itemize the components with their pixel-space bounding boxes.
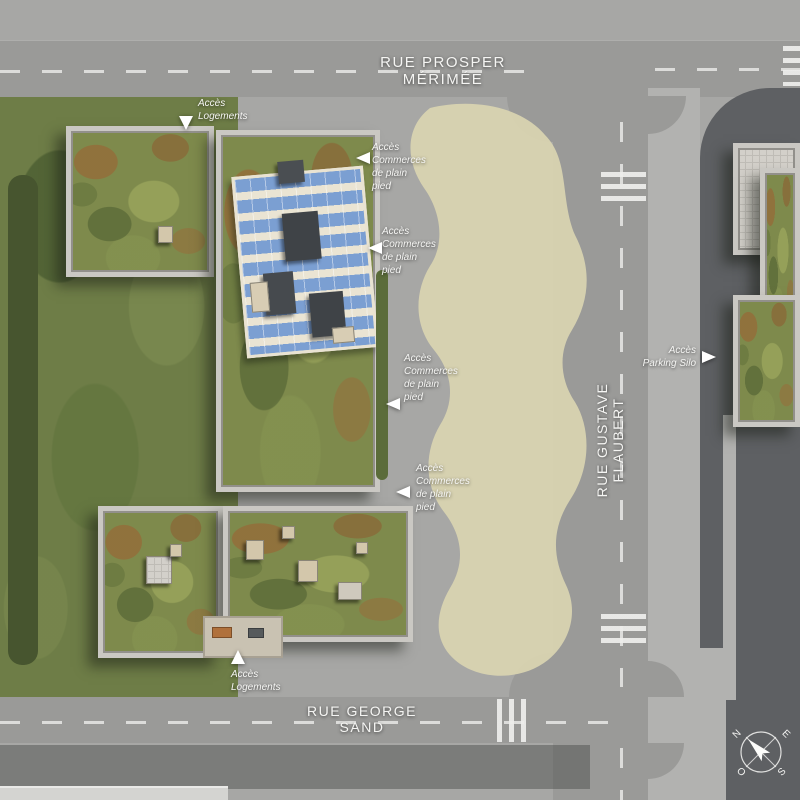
rooftop-unit xyxy=(298,560,318,582)
crosswalk xyxy=(601,614,646,646)
lane-marking xyxy=(655,68,800,71)
access-arrow-down-icon xyxy=(179,116,193,130)
access-arrow-up-icon xyxy=(231,650,245,664)
shaded-verge xyxy=(0,745,590,789)
annotation-acces-parking-silo: Accès Parking Silo xyxy=(636,344,696,370)
annotation-acces-logements-top: Accès Logements xyxy=(198,97,247,123)
building-b-solar-roof xyxy=(216,130,380,492)
rooftop-unit xyxy=(170,544,182,557)
rooftop-terrace xyxy=(146,556,172,584)
crosswalk xyxy=(497,699,532,742)
annotation-acces-commerces-3: Accès Commerces de plain pied xyxy=(404,352,458,404)
silo-building-green-roof xyxy=(733,295,800,427)
hedge-strip xyxy=(376,270,388,480)
building-a-green-roof xyxy=(66,126,214,277)
solar-panel-array xyxy=(231,166,378,359)
site-plan: N E S O RUE PROSPER MÉRIMÉE RUE GUSTAVE … xyxy=(0,0,800,800)
terrace-table xyxy=(212,627,232,638)
terrace-table xyxy=(248,628,264,638)
access-arrow-left-icon xyxy=(386,398,400,410)
street-label-right: RUE GUSTAVE FLAUBERT xyxy=(594,340,626,540)
rooftop-unit xyxy=(277,160,305,184)
rooftop-unit xyxy=(356,542,368,554)
rooftop-unit xyxy=(282,211,322,262)
annotation-acces-logements-bottom: Accès Logements xyxy=(231,668,280,694)
access-arrow-left-icon xyxy=(368,242,382,254)
parking-silo-grounds-south xyxy=(726,640,800,800)
building-roof-south xyxy=(0,786,228,800)
rooftop-unit xyxy=(158,226,173,243)
crosswalk xyxy=(783,46,800,86)
annotation-acces-commerces-2: Accès Commerces de plain pied xyxy=(382,225,436,277)
annotation-acces-commerces-4: Accès Commerces de plain pied xyxy=(416,462,470,514)
access-arrow-left-icon xyxy=(396,486,410,498)
hedge xyxy=(8,175,38,665)
crosswalk xyxy=(601,172,646,202)
rooftop-unit xyxy=(338,582,362,600)
rooftop-stair-box xyxy=(332,326,355,344)
rooftop-unit xyxy=(246,540,264,560)
road-corner xyxy=(507,96,553,142)
access-arrow-left-icon xyxy=(356,152,370,164)
annotation-acces-commerces-1: Accès Commerces de plain pied xyxy=(372,141,426,193)
street-label-bottom: RUE GEORGE SAND xyxy=(282,703,442,735)
sidewalk-right xyxy=(648,88,700,700)
parking-walkway xyxy=(723,415,736,700)
access-arrow-right-icon xyxy=(702,351,716,363)
street-label-top: RUE PROSPER MÉRIMÉE xyxy=(343,54,543,88)
rooftop-stair-box xyxy=(250,281,271,312)
rooftop-unit xyxy=(282,526,295,539)
road-corner xyxy=(509,653,553,697)
lane-marking xyxy=(620,748,623,800)
